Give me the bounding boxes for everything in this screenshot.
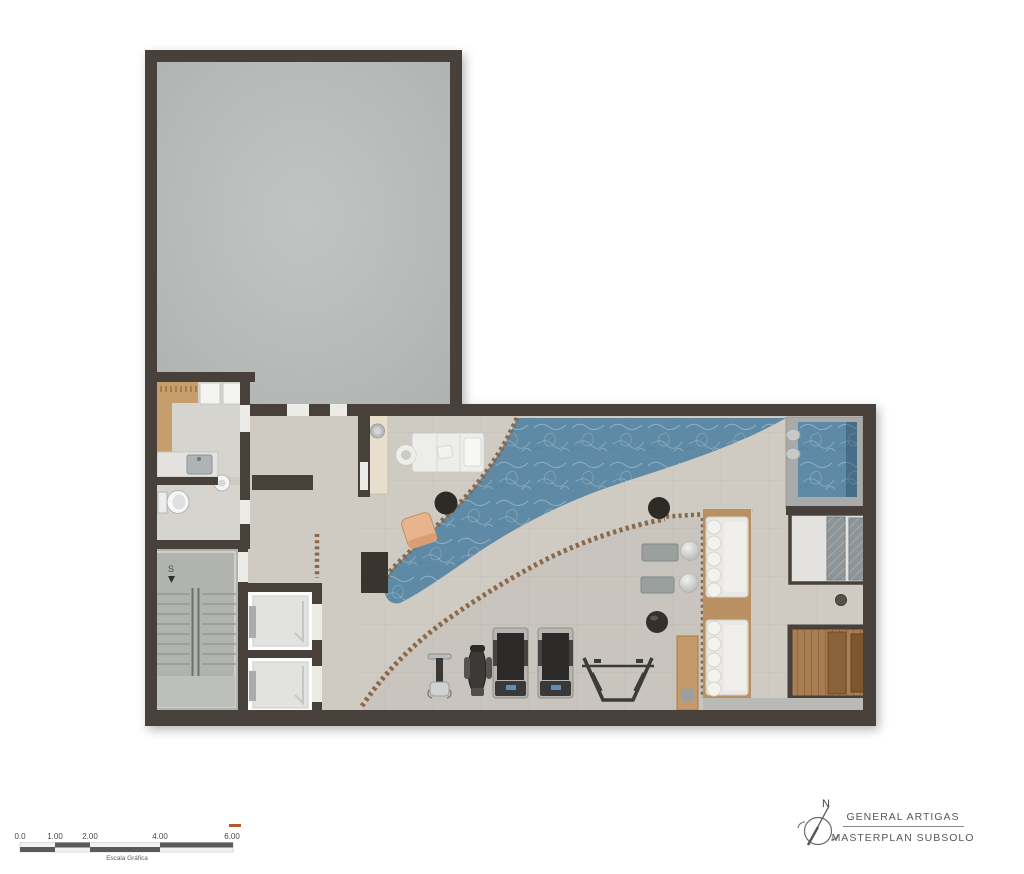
scale-tick-label: 2.00 [82,832,98,841]
north-label: N [822,798,830,810]
scale-tick-label: 4.00 [152,832,168,841]
scale-bar-segment [90,847,160,852]
scale-tick-label: 1.00 [47,832,63,841]
title-block: N GENERAL ARTIGAS MASTERPLAN SUBSOLO [798,798,974,845]
annotation-layer: 0.0 1.00 2.00 4.00 6.00 Escala Gráfica N… [0,0,1024,874]
sheet-title: MASTERPLAN SUBSOLO [832,832,975,844]
scale-bar-segment [55,843,90,848]
scale-bar: 0.0 1.00 2.00 4.00 6.00 Escala Gráfica [14,824,241,862]
floor-plan-sheet: S [0,0,1024,874]
scale-bar-segment [20,847,55,852]
scale-unit-mark [229,824,241,827]
scale-bar-caption: Escala Gráfica [106,855,148,862]
project-title: GENERAL ARTIGAS [846,811,959,823]
scale-tick-label: 0.0 [14,832,26,841]
scale-tick-label: 6.00 [224,832,240,841]
scale-bar-segment [160,843,233,848]
